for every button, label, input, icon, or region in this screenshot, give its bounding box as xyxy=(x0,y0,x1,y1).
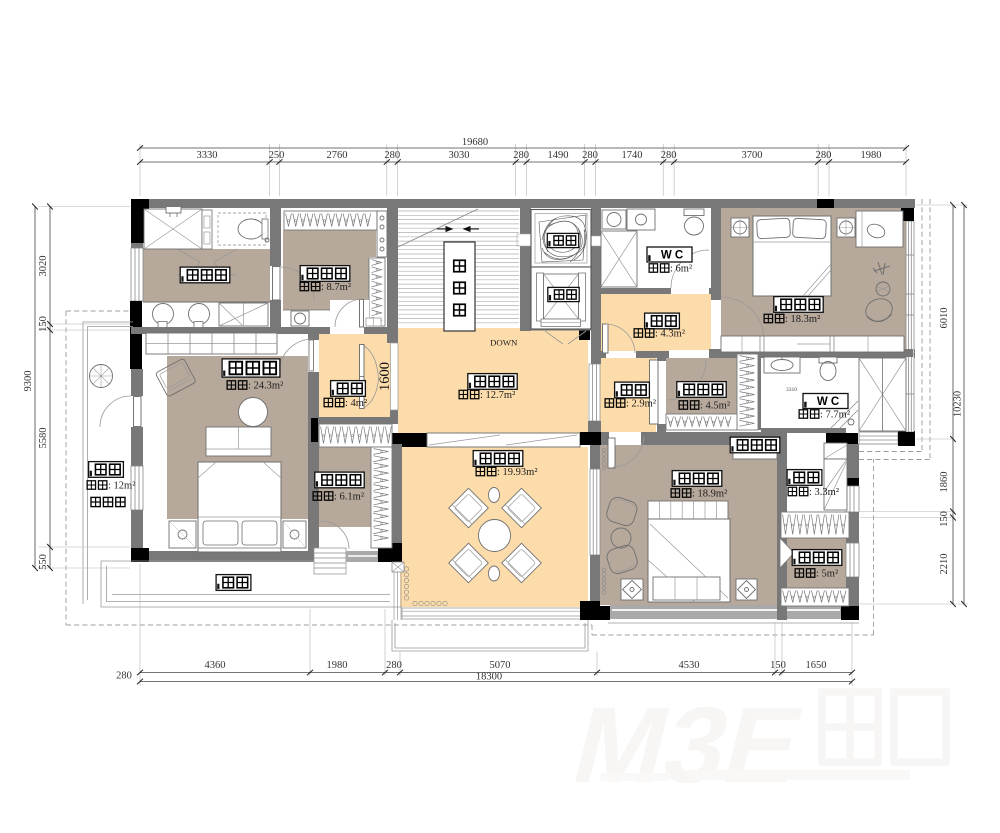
svg-text:5070: 5070 xyxy=(490,660,511,671)
svg-text:: 18.3m²: : 18.3m² xyxy=(785,314,820,325)
svg-text:280: 280 xyxy=(116,671,132,682)
svg-text:280: 280 xyxy=(386,660,402,671)
svg-text:250: 250 xyxy=(269,150,285,161)
svg-text:3020: 3020 xyxy=(38,256,49,277)
svg-text:1980: 1980 xyxy=(861,150,882,161)
svg-text:: 4.5m²: : 4.5m² xyxy=(700,401,730,412)
svg-text:DOWN: DOWN xyxy=(490,338,518,348)
svg-text:280: 280 xyxy=(661,150,677,161)
svg-text:4360: 4360 xyxy=(205,660,226,671)
svg-text:6010: 6010 xyxy=(939,308,950,329)
svg-text:19680: 19680 xyxy=(462,137,488,148)
svg-text:3330: 3330 xyxy=(197,150,218,161)
svg-text:1600: 1600 xyxy=(377,362,393,391)
svg-text:1490: 1490 xyxy=(548,150,569,161)
svg-text:280: 280 xyxy=(513,150,529,161)
svg-text:280: 280 xyxy=(384,150,400,161)
svg-text:1980: 1980 xyxy=(327,660,348,671)
svg-text:5580: 5580 xyxy=(38,428,49,449)
svg-text:10230: 10230 xyxy=(953,391,964,417)
svg-text:3310: 3310 xyxy=(786,387,797,393)
svg-text:4530: 4530 xyxy=(679,660,700,671)
svg-text:: 3.3m²: : 3.3m² xyxy=(809,487,839,498)
svg-text:3030: 3030 xyxy=(449,150,470,161)
svg-text:1650: 1650 xyxy=(806,660,827,671)
svg-text:: 2.9m²: : 2.9m² xyxy=(626,399,656,410)
svg-text:2760: 2760 xyxy=(327,150,348,161)
svg-text:150: 150 xyxy=(38,316,49,332)
svg-text:150: 150 xyxy=(939,511,950,527)
svg-text:: 18.9m²: : 18.9m² xyxy=(692,489,727,500)
svg-text:: 5m²: : 5m² xyxy=(816,569,838,580)
svg-text:: 12.7m²: : 12.7m² xyxy=(480,390,515,401)
svg-text:W C: W C xyxy=(817,396,839,408)
svg-text:1740: 1740 xyxy=(622,150,643,161)
svg-text:: 4.3m²: : 4.3m² xyxy=(655,329,685,340)
svg-text:: 4m²: : 4m² xyxy=(345,398,367,409)
svg-text:18300: 18300 xyxy=(476,672,502,683)
svg-text:: 24.3m²: : 24.3m² xyxy=(248,381,283,392)
svg-text:150: 150 xyxy=(770,660,786,671)
svg-text:3700: 3700 xyxy=(742,150,763,161)
svg-text:: 6.1m²: : 6.1m² xyxy=(334,492,364,503)
svg-text:2210: 2210 xyxy=(939,554,950,575)
svg-text:550: 550 xyxy=(38,554,49,570)
svg-text:: 12m²: : 12m² xyxy=(108,481,135,492)
svg-text:: 7.7m²: : 7.7m² xyxy=(820,410,850,421)
svg-text:: 6m²: : 6m² xyxy=(670,264,692,275)
svg-text:280: 280 xyxy=(816,150,832,161)
svg-text:M3E: M3E xyxy=(562,685,814,805)
svg-text:1860: 1860 xyxy=(939,472,950,493)
svg-text:280: 280 xyxy=(582,150,598,161)
svg-text:: 8.7m²: : 8.7m² xyxy=(321,282,351,293)
svg-text:W C: W C xyxy=(661,250,683,262)
svg-text:9300: 9300 xyxy=(23,371,34,392)
svg-text:: 19.93m²: : 19.93m² xyxy=(497,467,537,478)
